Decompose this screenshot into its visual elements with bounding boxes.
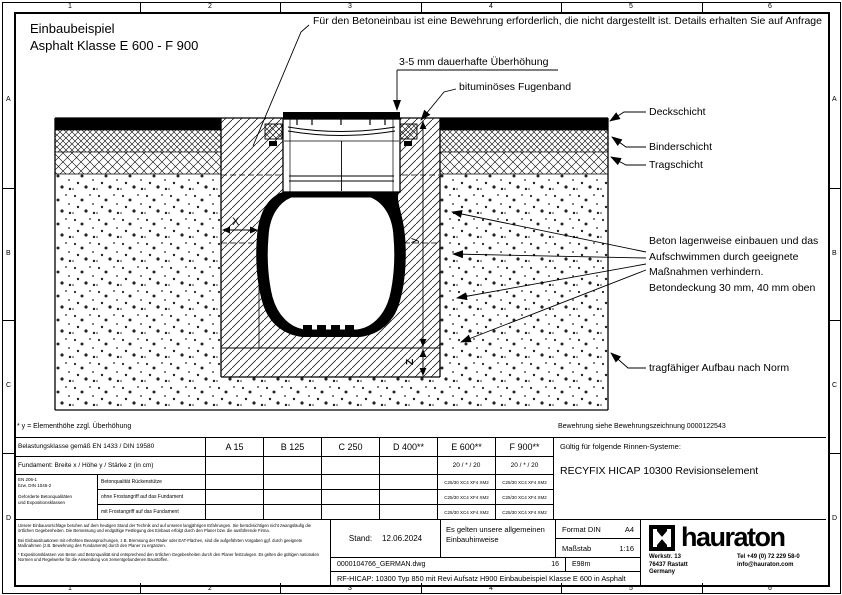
dim-x-label: X [232,216,240,228]
address-line: Werkstr. 13 [649,554,688,562]
company-contact: Tel +49 (0) 72 229 58-0 info@hauraton.co… [737,554,800,569]
note-concrete: Beton lagenweise einbauen und das Aufsch… [649,234,829,296]
concrete-empty-cell [379,490,437,505]
load-class-b125: B 125 [263,438,321,457]
load-class-c250: C 250 [321,438,379,457]
access-frame [283,112,400,192]
concrete-value-f900: C25/30 XC4 XF4 XM2 [495,475,553,490]
hauraton-wordmark: hauraton [681,524,785,550]
company-block: hauraton Werkstr. 13 76437 Rastatt Germa… [640,520,826,586]
disclaimer-cell: Unsere Einbauvorschläge beruhen auf dem … [14,520,330,586]
load-class-a15: A 15 [205,438,263,457]
concrete-empty-cell [205,475,263,490]
load-class-d400: D 400** [379,438,437,457]
note-joint-band: bituminöses Fugenband [459,81,571,94]
border-row-label: D [832,515,837,522]
format-cell: Format DIN A4 [555,520,640,539]
concrete-empty-cell [205,490,263,505]
concrete-empty-cell [263,505,321,520]
foundation-d400 [379,457,437,475]
concrete-standard-note2: und Expositionsklassen [18,500,97,506]
drawing-heading-line1: Einbaubeispiel [30,20,198,37]
concrete-empty-cell [263,475,321,490]
note-overheight: 3-5 mm dauerhafte Überhöhung [399,56,548,69]
drawing-title-row: RF-HICAP: 10300 Typ 850 mit Revi Aufsatz… [330,572,640,586]
concrete-row-label: ohne Frostangriff auf das Fundament [97,490,205,505]
drawing-heading: Einbaubeispiel Asphalt Klasse E 600 - F … [30,20,198,54]
systems-cell: Gültig für folgende Rinnen-Systeme: RECY… [553,438,826,520]
title-block: Belastungsklasse gemäß EN 1433 / DIN 195… [14,437,826,586]
foundation-e600: 20 / * / 20 [437,457,495,475]
concrete-row-label: Betonqualität Rückenstütze [97,475,205,490]
border-col-label: 2 [208,585,212,592]
drawing-sheet: 1 2 3 4 5 6 1 2 3 4 5 6 A B C D A B C D [0,0,842,595]
border-tick [2,453,14,454]
phone-line: Tel +49 (0) 72 229 58-0 [737,554,800,562]
concrete-empty-cell [263,490,321,505]
channel-body [256,192,406,337]
file-name: 0000104766_GERMAN.dwg [337,561,425,568]
drawing-heading-line2: Asphalt Klasse E 600 - F 900 [30,37,198,54]
foundation-row-label: Fundament: Breite x / Höhe y / Stärke z … [14,457,205,475]
format-label: Format DIN [562,525,601,534]
address-line: Germany [649,569,688,577]
dim-z-label: Z [405,359,416,365]
file-row: 0000104766_GERMAN.dwg 16 [330,558,565,572]
date-cell: Stand: 12.06.2024 [330,520,440,558]
load-class-e600: E 600** [437,438,495,457]
scale-value: 1:16 [619,544,634,553]
company-address: Werkstr. 13 76437 Rastatt Germany [649,554,688,577]
dim-y-label: y [409,238,420,243]
systems-value: RECYFIX HICAP 10300 Revisionselement [560,465,826,477]
label-deckschicht: Deckschicht [649,106,706,119]
label-binderschicht: Binderschicht [649,141,712,154]
load-class-row-label: Belastungsklasse gemäß EN 1433 / DIN 195… [14,438,205,457]
foundation-f900: 20 / * / 20 [495,457,553,475]
border-col-label: 4 [489,585,493,592]
label-tragschicht: Tragschicht [649,159,703,172]
email-line: info@hauraton.com [737,562,800,570]
concrete-empty-cell [205,505,263,520]
concrete-empty-cell [379,475,437,490]
concrete-empty-cell [379,505,437,520]
format-value: A4 [625,525,634,534]
disclaimer-paragraph: Bei Einbausituationen mit erhöhten Beans… [18,538,326,549]
systems-label: Gültig für folgende Rinnen-Systeme: [560,442,826,451]
concrete-value-f900: C25/30 XC4 XF4 XM2 [495,490,553,505]
note-reinforcement: Für den Betoneinbau ist eine Bewehrung e… [313,15,831,28]
concrete-value-f900: C25/30 XC4 XF4 XM2 [495,505,553,520]
concrete-value-e600: C25/30 XC4 XF4 XM2 [437,490,495,505]
border-row-label: D [6,515,11,522]
concrete-standard-cell: EN 206-1 bzw. DIN 1045-2 Geforderte Beto… [14,475,97,520]
concrete-value-e600: C25/30 XC4 XF4 XM2 [437,505,495,520]
border-col-label: 6 [768,585,772,592]
load-class-f900: F 900** [495,438,553,457]
concrete-empty-cell [321,475,379,490]
footnote-y: * y = Elementhöhe zzgl. Überhöhung [17,423,131,431]
address-line: 76437 Rastatt [649,562,688,570]
date-label: Stand: [349,534,372,543]
date-value: 12.06.2024 [382,534,422,543]
scale-cell: Maßstab 1:16 [555,539,640,558]
foundation-a15 [205,457,263,475]
border-tick [828,453,840,454]
sheet-number: 16 [551,561,559,568]
disclaimer-paragraph: * Expositionsklassen von Beton und Beton… [18,552,326,563]
note-rebar-drawing: Bewehrung siehe Bewehrungszeichnung 0000… [558,423,726,431]
installation-hint-cell: Es gelten unsere allgemeinen Einbauhinwe… [440,520,555,558]
concrete-empty-cell [321,505,379,520]
hauraton-logo-icon [649,525,675,551]
concrete-empty-cell [321,490,379,505]
concrete-value-e600: C25/30 XC4 XF4 XM2 [437,475,495,490]
scale-label: Maßstab [562,544,591,553]
border-col-label: 3 [348,585,352,592]
concrete-row-label: mit Frostangriff auf das Fundament [97,505,205,520]
doc-code-cell: E98m [565,558,640,572]
foundation-c250 [321,457,379,475]
border-col-label: 1 [68,585,72,592]
foundation-b125 [263,457,321,475]
note-subbase: tragfähiger Aufbau nach Norm [649,362,789,375]
border-col-label: 5 [629,585,633,592]
disclaimer-paragraph: Unsere Einbauvorschläge beruhen auf dem … [18,523,326,534]
